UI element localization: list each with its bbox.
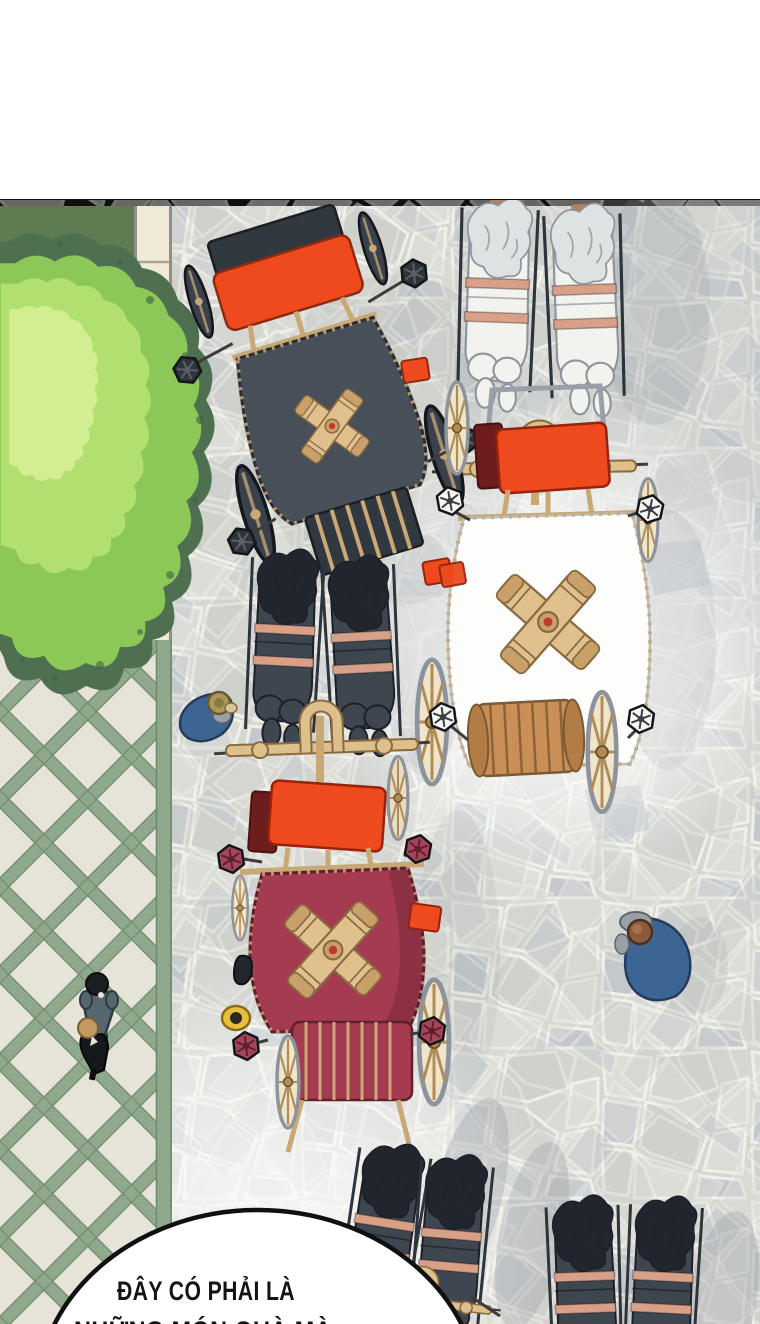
driver-seat-cushion (268, 780, 386, 852)
top-hat (222, 1006, 250, 1030)
speech-bubble-text-line1: ĐÂY CÓ PHẢI LÀ (117, 1274, 295, 1306)
panel-illustration: ĐÂY CÓ PHẢI LÀ NHỮNG MÓN QUÀ MÀ (0, 0, 760, 1324)
bundle (225, 703, 237, 713)
head (86, 973, 108, 995)
arm (615, 934, 629, 954)
comic-panel-page: ĐÂY CÓ PHẢI LÀ NHỮNG MÓN QUÀ MÀ (0, 0, 760, 1324)
driver-seat-cushion (496, 422, 610, 494)
head (78, 1018, 98, 1038)
orange-marker-flag (408, 903, 441, 932)
orange-marker-flag (401, 357, 430, 383)
dropped-boot (234, 956, 252, 985)
arm (106, 991, 118, 1009)
speech-bubble-text-line2: NHỮNG MÓN QUÀ MÀ (74, 1315, 332, 1324)
page-top-margin (0, 0, 760, 206)
rear-roller-barrel (466, 699, 586, 777)
